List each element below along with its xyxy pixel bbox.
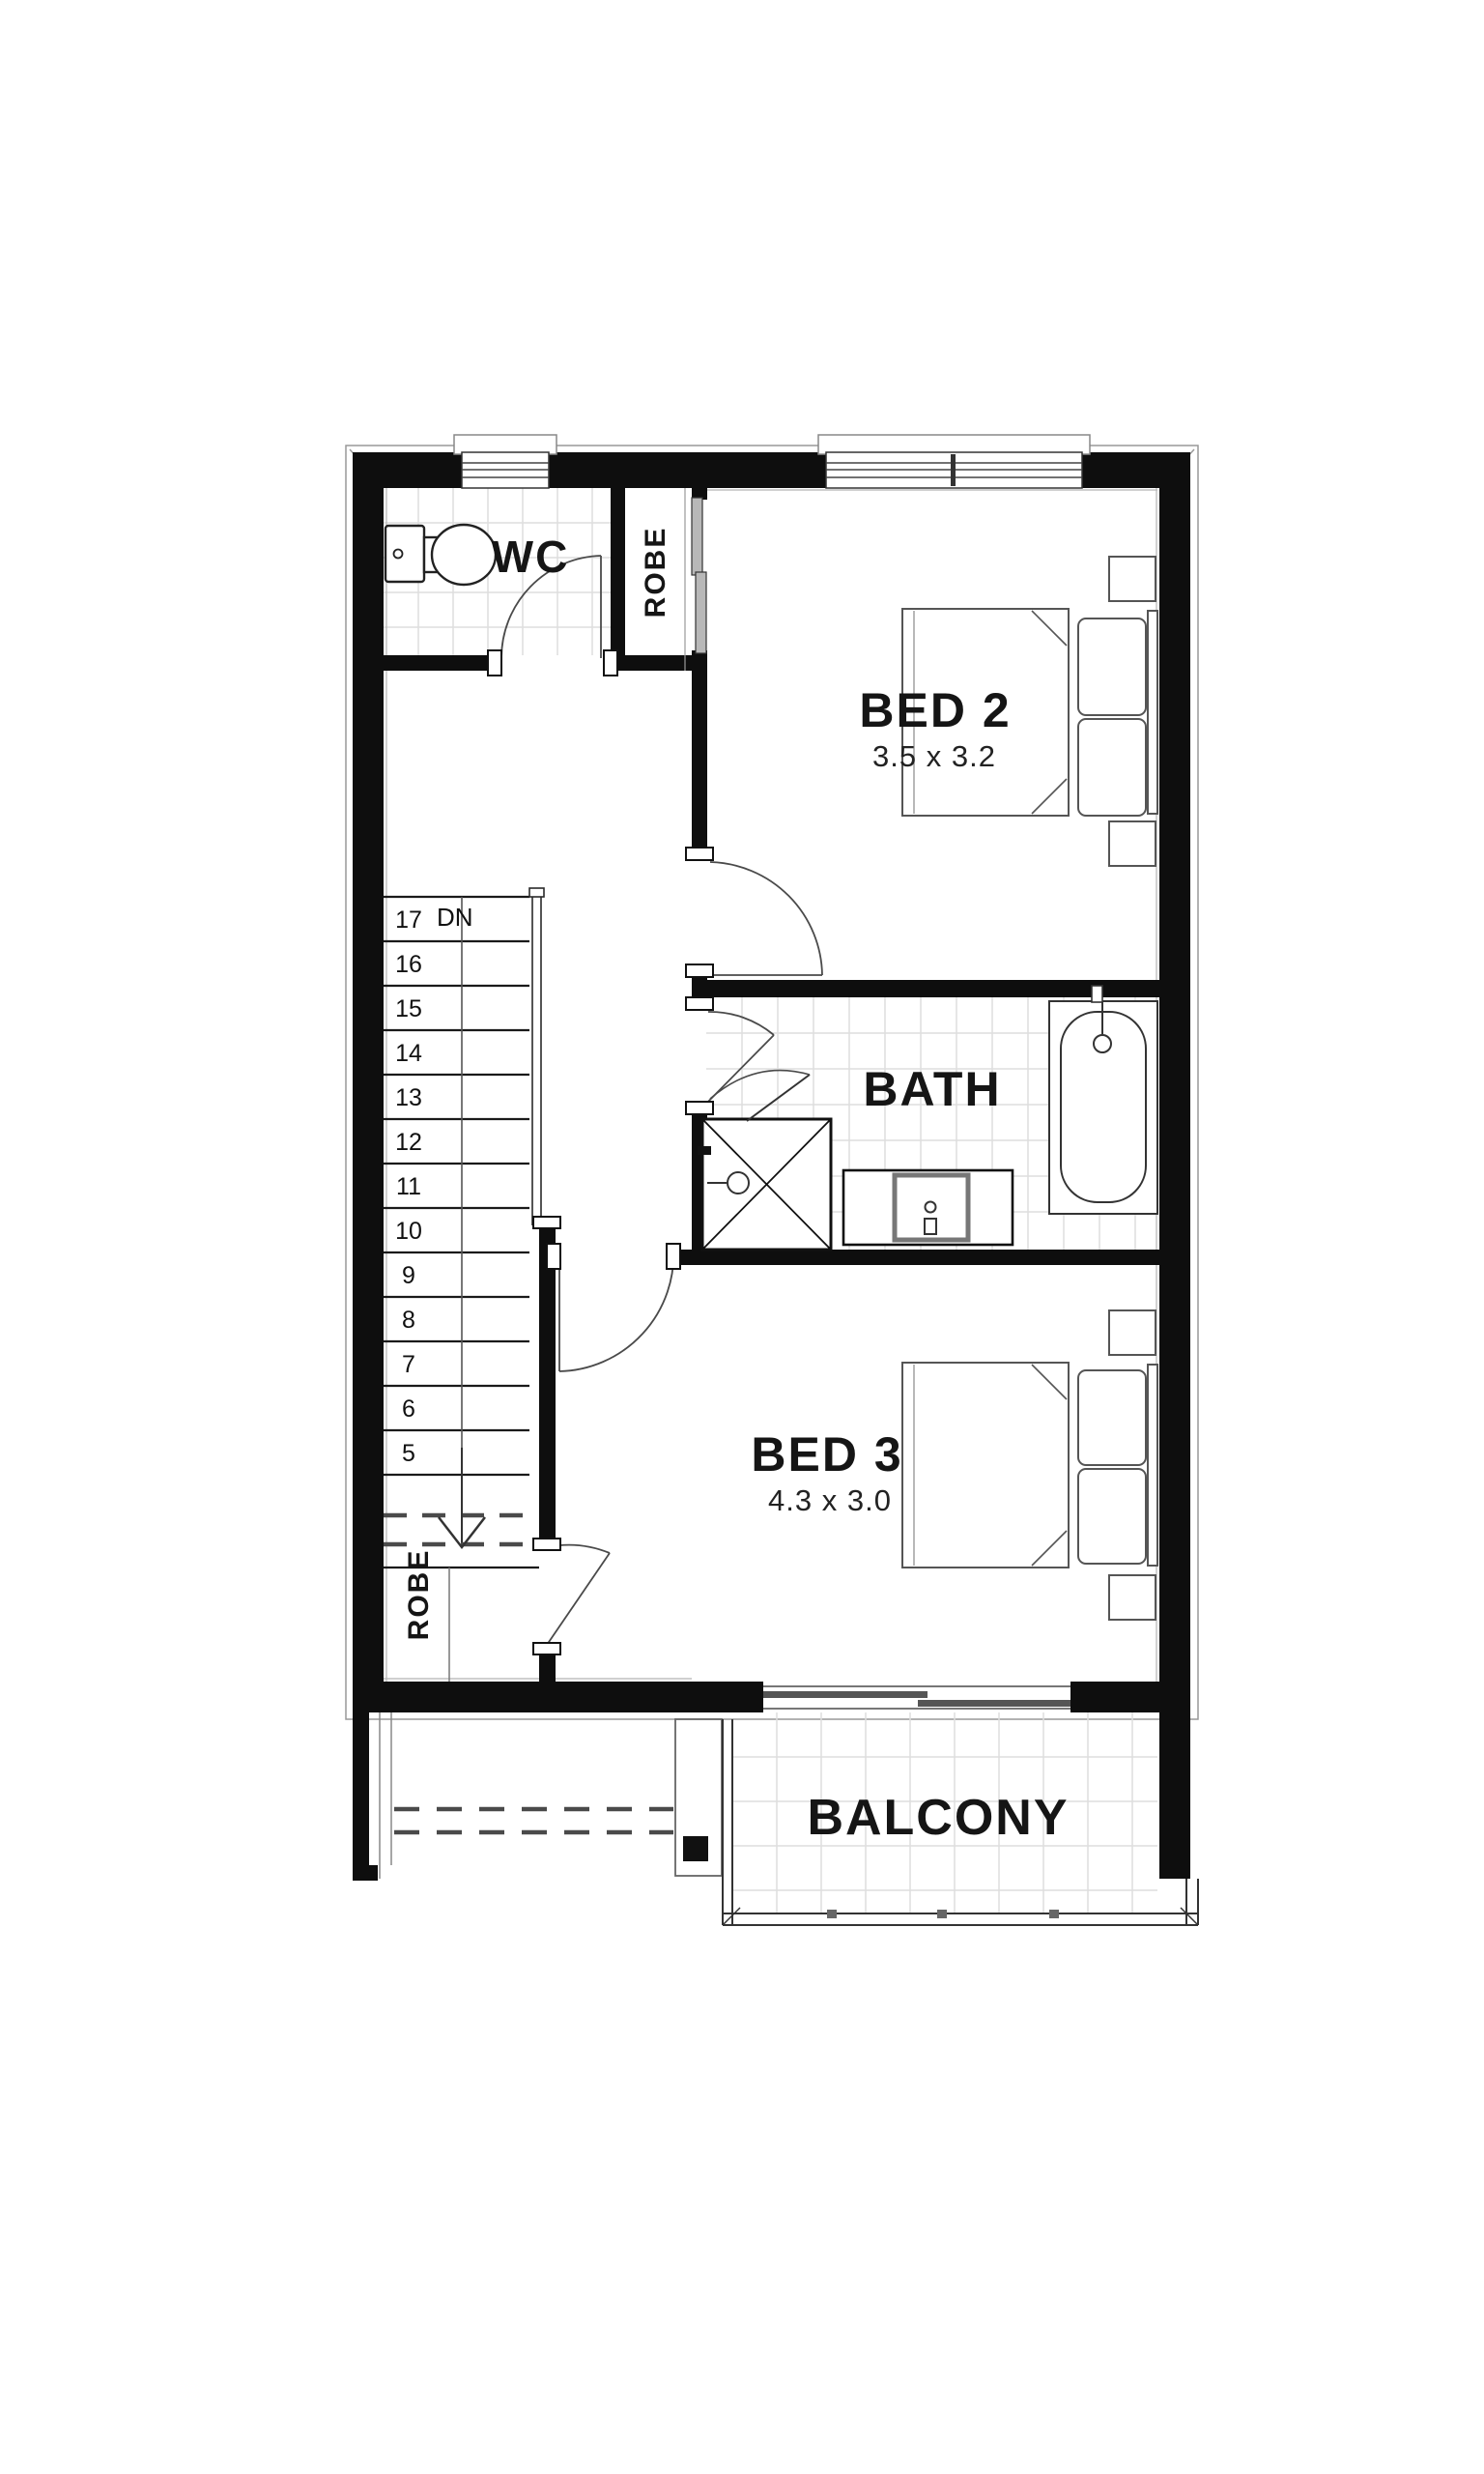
floor-plan-drawing: WC ROBE BED 2 3.5 x 3.2 BATH BED 3 4.3 x… — [0, 0, 1484, 2474]
bathtub-drain — [1094, 1035, 1111, 1052]
balcony-rail-post-2 — [937, 1910, 947, 1918]
bathtub-tap — [1092, 986, 1102, 1002]
wc-window-sill — [454, 435, 556, 454]
down-arrow-icon — [439, 1448, 485, 1547]
wall-lower-left — [353, 1712, 369, 1865]
bed2-door-swing-arc — [710, 862, 822, 975]
jamb-robe-lower-top — [533, 1539, 560, 1550]
balcony-slider-end-stub-left — [754, 1682, 763, 1712]
bed2-window-sill — [818, 435, 1090, 454]
wall-stair-side — [539, 1223, 556, 1539]
robe-lower-door-leaf — [545, 1553, 610, 1648]
jamb-bath-top — [686, 997, 713, 1010]
wall-wc-robe-divider — [611, 488, 625, 671]
step-number-6: 6 — [402, 1395, 415, 1423]
wall-wc-bottom-right — [618, 655, 692, 671]
balcony-label: BALCONY — [807, 1790, 1069, 1846]
balcony-slider-end-stub-right — [1070, 1682, 1080, 1712]
bed3-headboard — [1148, 1365, 1157, 1566]
bath-door-swing-arc — [708, 1012, 774, 1035]
robe-lower-label: ROBE — [403, 1549, 435, 1641]
jamb-wc-right — [604, 650, 617, 676]
bed3-label: BED 3 — [751, 1427, 902, 1482]
window-icon-wc — [454, 435, 556, 488]
lower-level-outline — [380, 1712, 673, 1879]
balcony-privacy-panel — [675, 1719, 722, 1876]
double-bed-icon-bed3 — [902, 1310, 1157, 1620]
bed2-nightstand-top — [1109, 557, 1156, 601]
balcony-slider-panel-2 — [918, 1700, 1075, 1707]
bed3-pillow-top — [1078, 1370, 1146, 1465]
wall-left — [353, 452, 384, 1712]
jamb-bed2-top — [686, 848, 713, 860]
bath-door — [700, 1012, 774, 1109]
shower-mixer — [698, 1146, 711, 1155]
bed3-door — [559, 1248, 673, 1371]
bed2-headboard — [1148, 611, 1157, 814]
wall-balcony-right — [1159, 1712, 1190, 1879]
stair-railing — [529, 888, 544, 1225]
bed2-label: BED 2 — [859, 683, 1011, 737]
step-number-17: 17 — [395, 906, 422, 934]
toilet-icon — [385, 525, 496, 585]
toilet-cistern — [385, 526, 424, 582]
step-number-10: 10 — [395, 1218, 422, 1245]
robe-slider-panel-1 — [692, 498, 702, 575]
bath-label: BATH — [863, 1062, 1001, 1116]
wall-lower-left-cap — [353, 1865, 378, 1881]
bed2-nightstand-bottom — [1109, 821, 1156, 866]
step-number-15: 15 — [395, 995, 422, 1022]
jamb-wc-left — [488, 650, 501, 676]
bed3-nightstand-top — [1109, 1310, 1156, 1355]
robe-upper-label: ROBE — [640, 527, 671, 618]
bed3-nightstand-bottom — [1109, 1575, 1156, 1620]
robe-slider-panel-2 — [696, 572, 706, 653]
bed2-door — [708, 862, 822, 975]
jamb-robe-lower-bottom — [533, 1643, 560, 1654]
window-icon-bed2 — [818, 435, 1090, 488]
wall-bath-bed3-divider — [673, 1250, 1159, 1265]
roof-dashed-lines — [394, 1809, 673, 1832]
bed2-pillow-bottom — [1078, 719, 1146, 816]
wall-bottom-segment-2 — [1075, 1682, 1190, 1712]
balcony-rail-post-1 — [827, 1910, 837, 1918]
vanity-basin — [895, 1175, 968, 1240]
balcony-slider-panel-1 — [763, 1691, 927, 1698]
stairs-down-label: DN — [437, 903, 473, 932]
jamb-bed2-bottom — [686, 964, 713, 977]
bed2-window-mullion — [951, 454, 956, 486]
stair-rail-newel-cap — [529, 888, 544, 897]
robe-upper-sliding-door-icon — [685, 488, 706, 671]
balcony-post — [683, 1836, 708, 1861]
wall-hall-bed2 — [692, 650, 707, 855]
step-number-16: 16 — [395, 951, 422, 978]
bed3-pillow-bottom — [1078, 1469, 1146, 1564]
bathtub-icon — [1049, 986, 1157, 1214]
jamb-bath-bottom — [686, 1102, 713, 1114]
vanity-sink-icon — [843, 1170, 1013, 1245]
bed2-dimensions: 3.5 x 3.2 — [872, 739, 996, 773]
jamb-bed3-left — [547, 1244, 560, 1269]
toilet-bowl — [432, 525, 496, 585]
jamb-bed3-right — [667, 1244, 680, 1269]
bed2-pillow-top — [1078, 618, 1146, 715]
step-number-9: 9 — [402, 1262, 415, 1289]
shower-icon — [698, 1071, 831, 1250]
bed3-door-swing-arc — [559, 1248, 673, 1371]
wall-top-segment-2 — [549, 452, 826, 488]
balcony-corner-tick-right — [1181, 1908, 1198, 1925]
toilet-flush-button — [394, 550, 403, 559]
balcony-sliding-door-icon — [754, 1682, 1080, 1712]
step-number-7: 7 — [402, 1351, 415, 1378]
wall-top-segment-1 — [353, 452, 462, 488]
step-number-13: 13 — [395, 1084, 422, 1111]
wall-bottom-segment-1 — [353, 1682, 763, 1712]
step-number-11: 11 — [396, 1173, 421, 1200]
step-number-5: 5 — [402, 1440, 415, 1467]
step-number-14: 14 — [395, 1040, 422, 1067]
floor-plan-page: WC ROBE BED 2 3.5 x 3.2 BATH BED 3 4.3 x… — [0, 0, 1484, 2474]
jamb-stair-wall-top — [533, 1217, 560, 1228]
robe-lower-door — [545, 1545, 610, 1648]
door-jamb-caps — [488, 650, 713, 1654]
step-number-12: 12 — [395, 1129, 422, 1156]
wall-wc-bottom-left — [384, 655, 489, 671]
wc-label: WC — [492, 532, 570, 582]
step-number-8: 8 — [402, 1307, 415, 1334]
balcony-rail-post-3 — [1049, 1910, 1059, 1918]
wall-right — [1159, 452, 1190, 1712]
bed3-mattress — [902, 1363, 1069, 1568]
wall-robe-lower-stub — [539, 1653, 556, 1682]
bed3-dimensions: 4.3 x 3.0 — [768, 1483, 892, 1517]
